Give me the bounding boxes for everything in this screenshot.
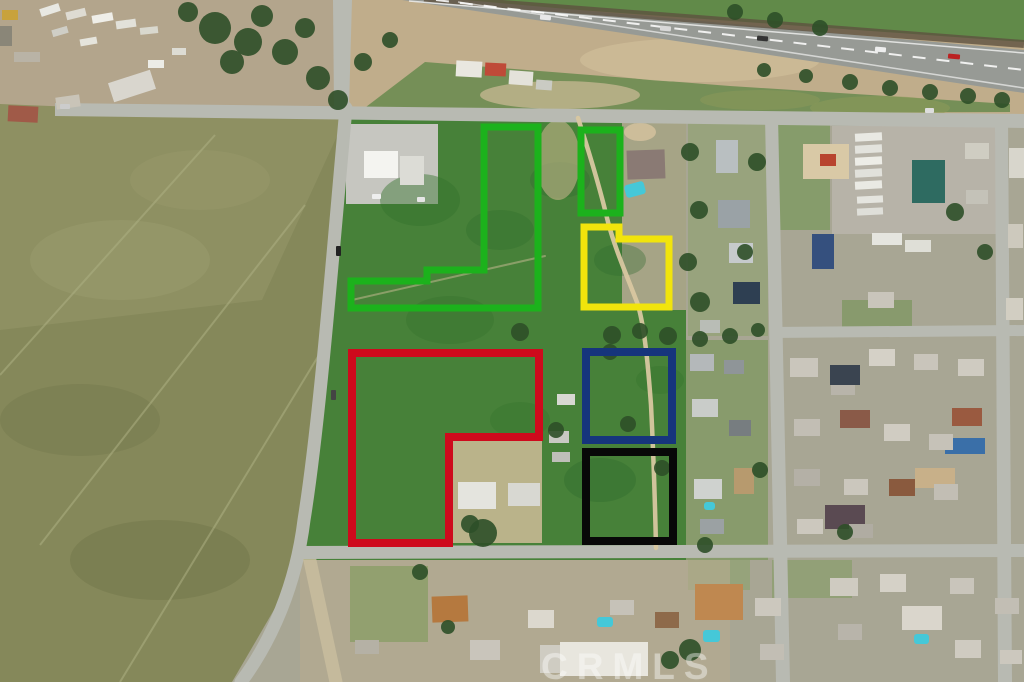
ground-patch — [636, 366, 684, 394]
building — [880, 574, 906, 592]
tree — [812, 20, 828, 36]
ground-patch — [0, 384, 160, 456]
tree — [354, 53, 372, 71]
building — [934, 484, 958, 500]
tree — [752, 462, 768, 478]
tree — [199, 12, 231, 44]
tree — [620, 416, 636, 432]
building — [1000, 650, 1022, 664]
ground-patch — [700, 90, 820, 110]
building — [794, 419, 820, 436]
tree — [272, 39, 298, 65]
building — [148, 60, 164, 68]
tree — [722, 328, 738, 344]
building — [355, 640, 379, 654]
ground-patch — [130, 150, 270, 210]
building — [794, 469, 820, 486]
vehicle — [336, 246, 341, 256]
tree — [690, 201, 708, 219]
ground-patch — [70, 520, 250, 600]
tree — [461, 515, 479, 533]
vehicle — [925, 108, 934, 113]
tree — [946, 203, 964, 221]
building — [700, 320, 720, 333]
tree — [306, 66, 330, 90]
tree — [178, 2, 198, 22]
building — [552, 452, 570, 462]
building — [485, 62, 507, 76]
aerial-listing-photo: CRMLS — [0, 0, 1024, 682]
building — [958, 359, 984, 376]
building — [700, 519, 724, 534]
building — [8, 105, 39, 123]
vehicle — [60, 104, 70, 109]
vehicle — [331, 390, 336, 400]
tree — [882, 80, 898, 96]
building — [690, 354, 714, 371]
building — [830, 578, 858, 596]
building — [830, 365, 860, 385]
building — [1008, 224, 1023, 248]
tree — [748, 153, 766, 171]
building — [2, 10, 18, 20]
tree — [692, 331, 708, 347]
building — [695, 584, 743, 620]
building — [734, 468, 754, 494]
building — [508, 483, 540, 506]
tree — [767, 12, 783, 28]
building — [1006, 298, 1023, 320]
tree — [382, 32, 398, 48]
vehicle — [660, 26, 671, 32]
tree — [511, 323, 529, 341]
ground-patch — [30, 220, 210, 300]
building — [868, 292, 894, 308]
building — [692, 399, 718, 417]
tree — [977, 244, 993, 260]
building — [855, 180, 882, 189]
building — [716, 140, 738, 173]
building — [458, 482, 496, 509]
tree — [690, 292, 710, 312]
building — [812, 234, 834, 269]
building — [966, 190, 988, 204]
tree — [441, 620, 455, 634]
building — [172, 48, 186, 55]
building — [610, 600, 634, 615]
building — [694, 479, 722, 499]
building — [950, 578, 974, 594]
building — [509, 70, 534, 86]
tree — [697, 537, 713, 553]
tree — [548, 422, 564, 438]
building — [820, 154, 836, 166]
swimming-pool — [597, 617, 613, 627]
swimming-pool — [914, 634, 929, 644]
street-horizontal-mid-right — [770, 325, 1024, 338]
tree — [727, 4, 743, 20]
building — [718, 200, 750, 228]
tree — [960, 88, 976, 104]
building — [857, 195, 883, 203]
tree — [757, 63, 771, 77]
building — [914, 354, 938, 370]
lot-strip-east-of-parcels — [622, 114, 686, 310]
building — [724, 360, 744, 374]
building — [869, 349, 895, 366]
building — [912, 160, 945, 203]
building — [1009, 148, 1024, 178]
vehicle — [417, 197, 425, 202]
building — [733, 282, 760, 304]
tree — [994, 92, 1010, 108]
building — [528, 610, 554, 628]
building — [929, 434, 953, 450]
tree — [412, 564, 428, 580]
mls-watermark: CRMLS — [541, 648, 718, 682]
tree — [654, 460, 670, 476]
building — [729, 420, 751, 436]
building — [432, 595, 469, 622]
building — [790, 358, 818, 377]
vehicle — [757, 36, 768, 42]
tree — [328, 90, 348, 110]
tree — [603, 326, 621, 344]
tree — [632, 323, 648, 339]
building — [627, 149, 666, 179]
tree — [659, 327, 677, 345]
building — [872, 233, 902, 245]
building — [797, 519, 823, 534]
tree — [679, 253, 697, 271]
tree — [799, 69, 813, 83]
building — [855, 156, 882, 165]
building — [470, 640, 500, 660]
vehicle — [372, 194, 381, 199]
ground-patch — [624, 123, 656, 141]
building — [840, 410, 870, 428]
swimming-pool — [703, 630, 720, 642]
building — [855, 168, 882, 177]
swimming-pool — [704, 502, 715, 510]
building — [952, 408, 982, 426]
vehicle — [540, 15, 551, 21]
ground-patch — [466, 210, 534, 250]
tree — [837, 524, 853, 540]
building — [755, 598, 781, 616]
building — [889, 479, 915, 496]
building — [364, 151, 398, 178]
tree — [922, 84, 938, 100]
aerial-scene — [0, 0, 1024, 682]
building — [456, 60, 483, 77]
building — [655, 612, 679, 628]
tree — [681, 143, 699, 161]
building — [838, 624, 862, 640]
building — [965, 143, 989, 159]
building — [0, 26, 12, 46]
building — [902, 606, 942, 630]
building — [14, 52, 40, 62]
building — [760, 644, 784, 660]
ground-patch — [480, 81, 640, 109]
building — [400, 156, 424, 185]
vehicle — [875, 47, 886, 53]
tree — [737, 244, 753, 260]
tree — [295, 18, 315, 38]
building — [855, 144, 882, 153]
ground-patch — [406, 296, 494, 344]
tree — [842, 74, 858, 90]
building — [955, 640, 981, 658]
building — [855, 132, 882, 141]
tree — [251, 5, 273, 27]
building — [884, 424, 910, 441]
tree — [751, 323, 765, 337]
building — [857, 207, 883, 215]
building — [557, 394, 575, 405]
ground-patch — [564, 458, 636, 502]
building — [995, 598, 1019, 614]
ground-patch — [536, 120, 580, 200]
vehicle — [948, 53, 960, 59]
building — [536, 79, 553, 90]
building — [905, 240, 931, 252]
tree — [220, 50, 244, 74]
building — [844, 479, 868, 495]
